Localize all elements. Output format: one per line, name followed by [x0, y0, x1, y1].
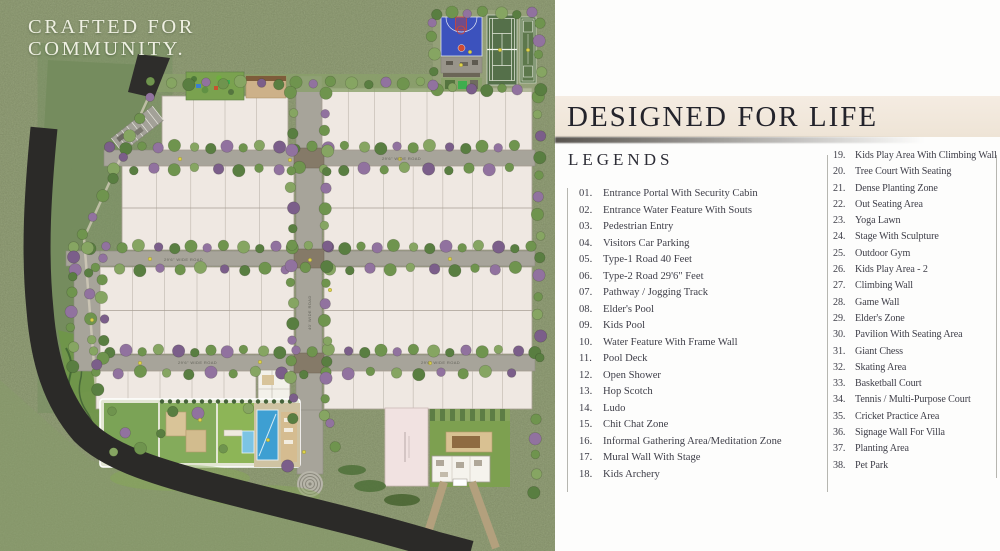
legend-number: 06. — [579, 269, 603, 286]
legend-item-08: 08.Elder's Pool — [579, 302, 782, 319]
legend-number: 32. — [833, 360, 855, 376]
legend-number: 16. — [579, 434, 603, 451]
road-label-type2: 29'6" WIDE ROAD — [164, 257, 203, 262]
legend-number: 22. — [833, 197, 855, 213]
legend-item-23: 23.Yoga Lawn — [833, 213, 997, 229]
legend-label: Ludo — [603, 401, 625, 418]
legend-number: 37. — [833, 441, 855, 457]
road-label-type2: 29'6" WIDE ROAD — [178, 360, 217, 365]
legend-item-21: 21.Dense Planting Zone — [833, 181, 997, 197]
tagline: CRAFTED FOR COMMUNITY. — [28, 16, 195, 60]
legend-item-12: 12.Open Shower — [579, 368, 782, 385]
legend-item-29: 29.Elder's Zone — [833, 311, 997, 327]
divider-middle — [827, 155, 828, 492]
legend-item-16: 16.Informal Gathering Area/Meditation Zo… — [579, 434, 782, 451]
site-plan-map: 29'6" WIDE ROAD 29'6" WIDE ROAD 29'6" WI… — [0, 0, 555, 551]
legend-label: Giant Chess — [855, 344, 903, 360]
legend-label: Yoga Lawn — [855, 213, 900, 229]
legend-number: 26. — [833, 262, 855, 278]
legend-item-15: 15.Chit Chat Zone — [579, 417, 782, 434]
legend-item-13: 13.Hop Scotch — [579, 384, 782, 401]
legend-number: 24. — [833, 229, 855, 245]
legend-number: 02. — [579, 203, 603, 220]
legend-number: 28. — [833, 295, 855, 311]
legend-number: 01. — [579, 186, 603, 203]
legend-number: 17. — [579, 450, 603, 467]
legend-number: 03. — [579, 219, 603, 236]
legend-number: 14. — [579, 401, 603, 418]
legend-number: 11. — [579, 351, 603, 368]
legend-label: Chit Chat Zone — [603, 417, 668, 434]
legend-panel: DESIGNED FOR LIFE LEGENDS 01.Entrance Po… — [555, 0, 1000, 551]
legend-item-27: 27.Climbing Wall — [833, 278, 997, 294]
legend-number: 25. — [833, 246, 855, 262]
legend-label: Open Shower — [603, 368, 661, 385]
legend-number: 07. — [579, 285, 603, 302]
legend-label: Signage Wall For Villa — [855, 425, 945, 441]
divider-left — [567, 188, 568, 492]
legend-number: 29. — [833, 311, 855, 327]
legend-label: Stage With Sculpture — [855, 229, 939, 245]
legend-item-02: 02.Entrance Water Feature With Souts — [579, 203, 782, 220]
legend-label: Kids Play Area - 2 — [855, 262, 928, 278]
legend-label: Pool Deck — [603, 351, 647, 368]
legend-number: 23. — [833, 213, 855, 229]
legend-number: 13. — [579, 384, 603, 401]
legend-item-11: 11.Pool Deck — [579, 351, 782, 368]
legend-label: Planting Area — [855, 441, 909, 457]
road-label-type2: 29'6" WIDE ROAD — [421, 360, 460, 365]
legend-label: Pet Park — [855, 458, 888, 474]
legend-label: Skating Area — [855, 360, 906, 376]
legend-item-07: 07.Pathway / Jogging Track — [579, 285, 782, 302]
legend-item-03: 03.Pedestrian Entry — [579, 219, 782, 236]
legend-item-31: 31.Giant Chess — [833, 344, 997, 360]
legend-label: Out Seating Area — [855, 197, 923, 213]
page-title: DESIGNED FOR LIFE — [567, 96, 878, 138]
legend-label: Pedestrian Entry — [603, 219, 673, 236]
legend-number: 05. — [579, 252, 603, 269]
tagline-line2: COMMUNITY. — [28, 38, 195, 60]
legend-label: Hop Scotch — [603, 384, 653, 401]
legend-item-18: 18.Kids Archery — [579, 467, 782, 484]
basketball-court — [441, 17, 482, 56]
legend-label: Pavilion With Seating Area — [855, 327, 963, 343]
legend-label: Informal Gathering Area/Meditation Zone — [603, 434, 782, 451]
legend-label: Kids Pool — [603, 318, 645, 335]
legend-item-25: 25.Outdoor Gym — [833, 246, 997, 262]
security-cabin — [432, 456, 490, 482]
road-label-type1: 40' WIDE ROAD — [307, 295, 312, 330]
legend-item-37: 37.Planting Area — [833, 441, 997, 457]
legend-number: 21. — [833, 181, 855, 197]
legend-label: Pathway / Jogging Track — [603, 285, 708, 302]
legend-number: 36. — [833, 425, 855, 441]
legend-item-24: 24.Stage With Sculpture — [833, 229, 997, 245]
legend-label: Kids Archery — [603, 467, 660, 484]
legend-label: Kids Play Area With Climbing Wall — [855, 148, 997, 164]
legend-number: 34. — [833, 392, 855, 408]
legend-item-17: 17.Mural Wall With Stage — [579, 450, 782, 467]
legend-number: 30. — [833, 327, 855, 343]
legend-item-35: 35.Cricket Practice Area — [833, 409, 997, 425]
legend-item-26: 26.Kids Play Area - 2 — [833, 262, 997, 278]
legend-item-33: 33.Basketball Court — [833, 376, 997, 392]
legend-label: Tennis / Multi-Purpose Court — [855, 392, 971, 408]
entrance-portal — [453, 479, 467, 486]
header-banner: DESIGNED FOR LIFE — [555, 96, 1000, 137]
site-plan-drawing: 29'6" WIDE ROAD 29'6" WIDE ROAD 29'6" WI… — [0, 0, 555, 551]
legend-label: Climbing Wall — [855, 278, 913, 294]
legend-item-04: 04.Visitors Car Parking — [579, 236, 782, 253]
legend-item-38: 38.Pet Park — [833, 458, 997, 474]
legend-number: 04. — [579, 236, 603, 253]
legend-item-34: 34.Tennis / Multi-Purpose Court — [833, 392, 997, 408]
legend-item-28: 28.Game Wall — [833, 295, 997, 311]
legend-item-20: 20.Tree Court With Seating — [833, 164, 997, 180]
legend-number: 15. — [579, 417, 603, 434]
planting-strip — [430, 409, 510, 421]
legend-label: Water Feature With Frame Wall — [603, 335, 738, 352]
legend-label: Elder's Pool — [603, 302, 654, 319]
legend-number: 08. — [579, 302, 603, 319]
legend-number: 12. — [579, 368, 603, 385]
tagline-line1: CRAFTED FOR — [28, 16, 195, 38]
outdoor-gym-pad — [441, 57, 482, 77]
legend-label: Dense Planting Zone — [855, 181, 938, 197]
legend-label: Visitors Car Parking — [603, 236, 689, 253]
legend-item-06: 06.Type-2 Road 29'6" Feet — [579, 269, 782, 286]
legend-label: Type-1 Road 40 Feet — [603, 252, 692, 269]
legend-number: 27. — [833, 278, 855, 294]
legend-number: 09. — [579, 318, 603, 335]
legend-label: Type-2 Road 29'6" Feet — [603, 269, 704, 286]
legend-label: Elder's Zone — [855, 311, 905, 327]
legend-number: 19. — [833, 148, 855, 164]
legend-item-10: 10.Water Feature With Frame Wall — [579, 335, 782, 352]
signage-plot — [385, 408, 428, 486]
legend-number: 35. — [833, 409, 855, 425]
legend-label: Mural Wall With Stage — [603, 450, 700, 467]
kids-pool — [242, 431, 254, 453]
legend-number: 33. — [833, 376, 855, 392]
legend-column-left: 01.Entrance Portal With Security Cabin02… — [579, 186, 782, 483]
legend-item-05: 05.Type-1 Road 40 Feet — [579, 252, 782, 269]
legend-item-09: 09.Kids Pool — [579, 318, 782, 335]
legend-item-32: 32.Skating Area — [833, 360, 997, 376]
legend-item-19: 19.Kids Play Area With Climbing Wall — [833, 148, 997, 164]
legend-label: Cricket Practice Area — [855, 409, 939, 425]
legend-number: 31. — [833, 344, 855, 360]
legend-label: Outdoor Gym — [855, 246, 910, 262]
legend-number: 18. — [579, 467, 603, 484]
legends-title: LEGENDS — [568, 150, 673, 170]
legend-number: 10. — [579, 335, 603, 352]
legend-item-22: 22.Out Seating Area — [833, 197, 997, 213]
legend-number: 20. — [833, 164, 855, 180]
tennis-court — [487, 15, 517, 85]
banner-shadow — [555, 137, 940, 143]
road-label-type2: 29'6" WIDE ROAD — [382, 156, 421, 161]
legend-item-01: 01.Entrance Portal With Security Cabin — [579, 186, 782, 203]
masterplan-page: 29'6" WIDE ROAD 29'6" WIDE ROAD 29'6" WI… — [0, 0, 1000, 551]
sports-zone — [433, 10, 537, 92]
legend-item-30: 30.Pavilion With Seating Area — [833, 327, 997, 343]
legend-label: Game Wall — [855, 295, 899, 311]
legend-number: 38. — [833, 458, 855, 474]
legend-label: Entrance Water Feature With Souts — [603, 203, 752, 220]
legend-item-36: 36.Signage Wall For Villa — [833, 425, 997, 441]
legend-label: Basketball Court — [855, 376, 922, 392]
legend-item-14: 14.Ludo — [579, 401, 782, 418]
legend-column-right: 19.Kids Play Area With Climbing Wall20.T… — [833, 148, 997, 474]
legend-label: Tree Court With Seating — [855, 164, 951, 180]
legend-label: Entrance Portal With Security Cabin — [603, 186, 758, 203]
